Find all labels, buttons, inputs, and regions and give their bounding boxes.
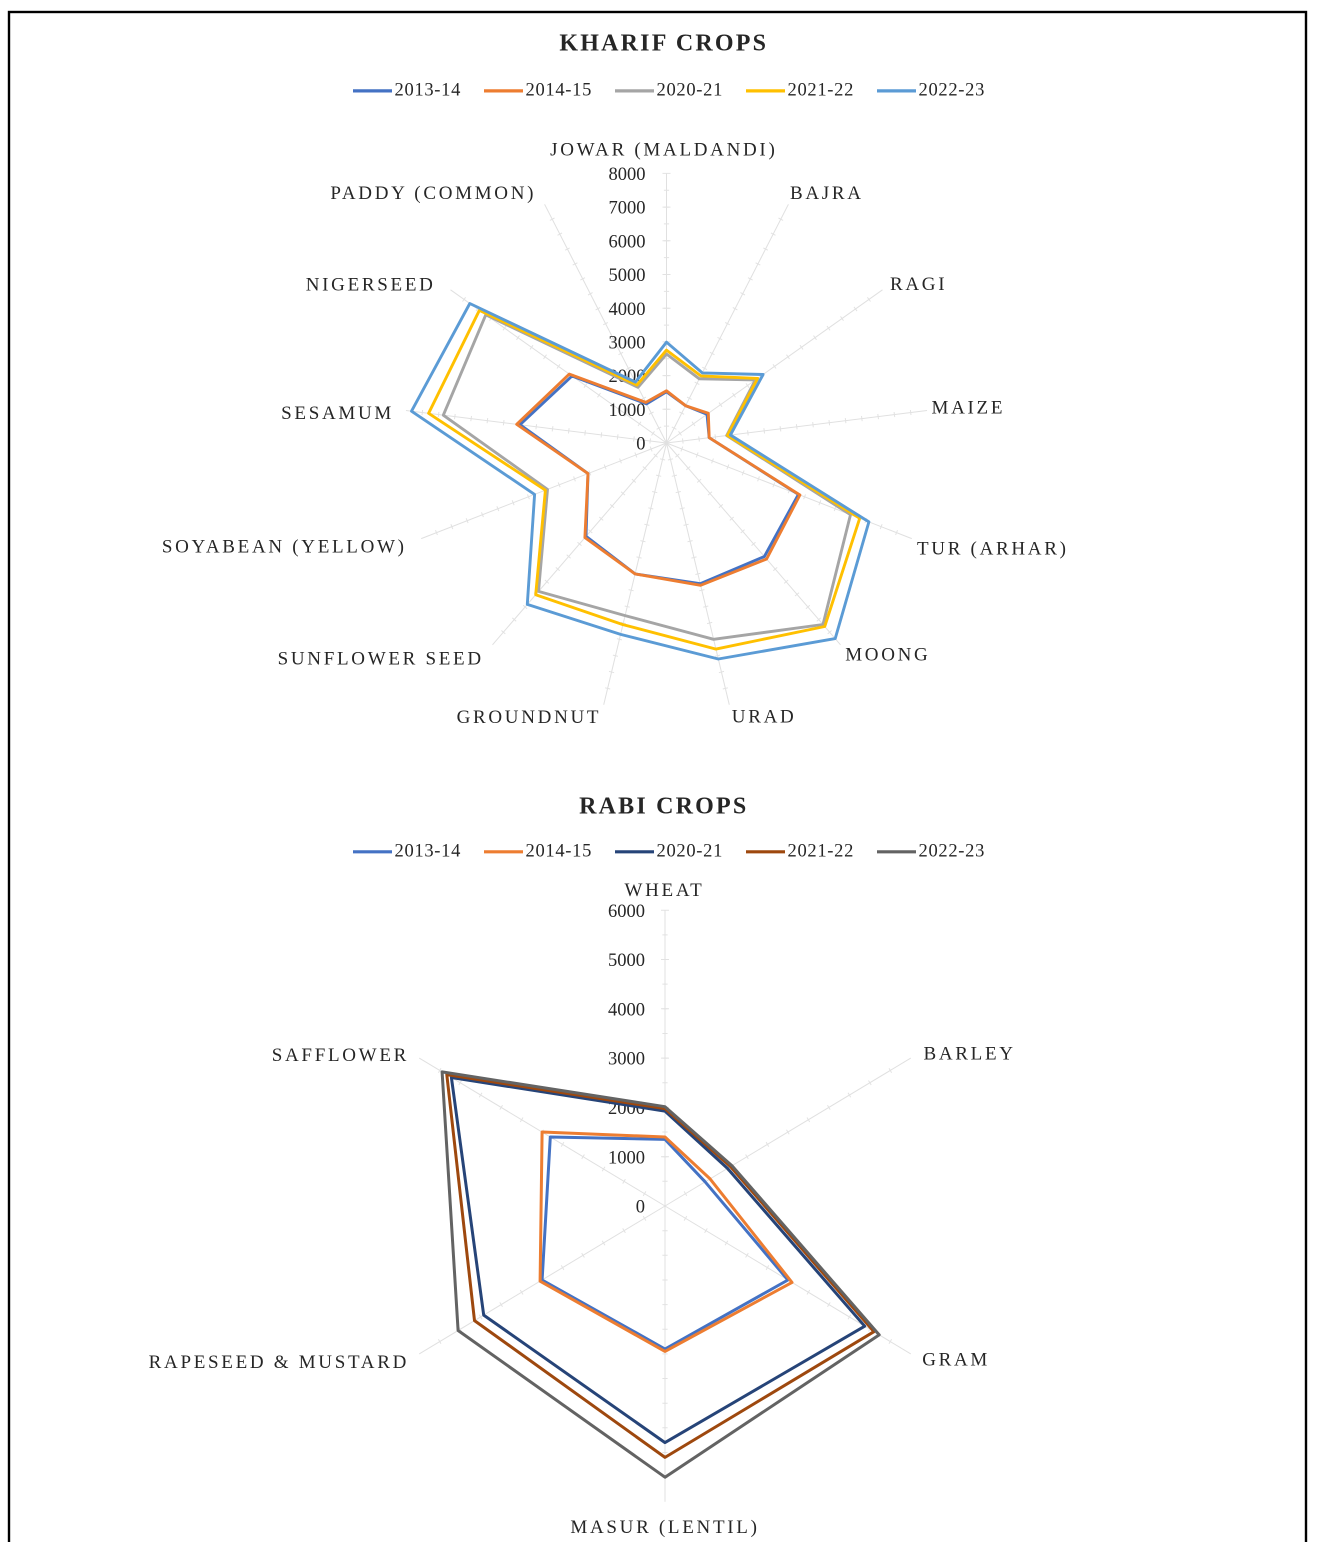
svg-text:5000: 5000 (609, 266, 646, 286)
svg-text:TUR (ARHAR): TUR (ARHAR) (917, 539, 1069, 560)
svg-text:1000: 1000 (609, 401, 646, 421)
svg-text:KHARIF CROPS: KHARIF CROPS (559, 31, 768, 57)
svg-text:2014-15: 2014-15 (526, 81, 593, 101)
svg-text:URAD: URAD (732, 707, 797, 728)
svg-text:4000: 4000 (608, 1000, 645, 1020)
svg-text:7000: 7000 (609, 199, 646, 219)
svg-text:2022-23: 2022-23 (919, 81, 986, 101)
svg-text:GROUNDNUT: GROUNDNUT (457, 707, 602, 728)
svg-text:0: 0 (636, 435, 645, 455)
svg-text:MOONG: MOONG (845, 645, 930, 666)
svg-text:2020-21: 2020-21 (657, 841, 724, 861)
svg-text:SESAMUM: SESAMUM (281, 403, 394, 424)
svg-text:JOWAR (MALDANDI): JOWAR (MALDANDI) (550, 140, 777, 161)
svg-text:2020-21: 2020-21 (657, 81, 724, 101)
svg-text:6000: 6000 (608, 902, 645, 922)
svg-text:MAIZE: MAIZE (932, 398, 1006, 419)
svg-text:1000: 1000 (608, 1148, 645, 1168)
svg-text:SAFFLOWER: SAFFLOWER (272, 1045, 409, 1066)
svg-text:SOYABEAN (YELLOW): SOYABEAN (YELLOW) (162, 537, 407, 558)
svg-text:2021-22: 2021-22 (788, 841, 855, 861)
svg-text:0: 0 (636, 1198, 645, 1218)
svg-text:6000: 6000 (609, 232, 646, 252)
svg-text:2022-23: 2022-23 (919, 841, 986, 861)
svg-text:BARLEY: BARLEY (924, 1044, 1016, 1065)
svg-text:RABI CROPS: RABI CROPS (579, 794, 748, 820)
svg-text:GRAM: GRAM (922, 1350, 990, 1371)
svg-text:MASUR (LENTIL): MASUR (LENTIL) (570, 1517, 759, 1538)
svg-text:NIGERSEED: NIGERSEED (306, 275, 436, 296)
svg-text:5000: 5000 (608, 951, 645, 971)
svg-text:RAGI: RAGI (890, 274, 947, 295)
svg-text:SUNFLOWER SEED: SUNFLOWER SEED (278, 649, 484, 670)
svg-text:RAPESEED & MUSTARD: RAPESEED & MUSTARD (149, 1352, 409, 1373)
svg-text:2021-22: 2021-22 (788, 81, 855, 101)
svg-text:4000: 4000 (609, 300, 646, 320)
svg-text:2013-14: 2013-14 (395, 81, 462, 101)
svg-text:8000: 8000 (609, 165, 646, 185)
svg-text:3000: 3000 (608, 1050, 645, 1070)
svg-text:WHEAT: WHEAT (625, 880, 705, 901)
svg-text:2013-14: 2013-14 (395, 841, 462, 861)
svg-text:PADDY (COMMON): PADDY (COMMON) (330, 183, 536, 204)
svg-text:2014-15: 2014-15 (526, 841, 593, 861)
svg-text:3000: 3000 (609, 334, 646, 354)
svg-text:BAJRA: BAJRA (790, 183, 864, 204)
